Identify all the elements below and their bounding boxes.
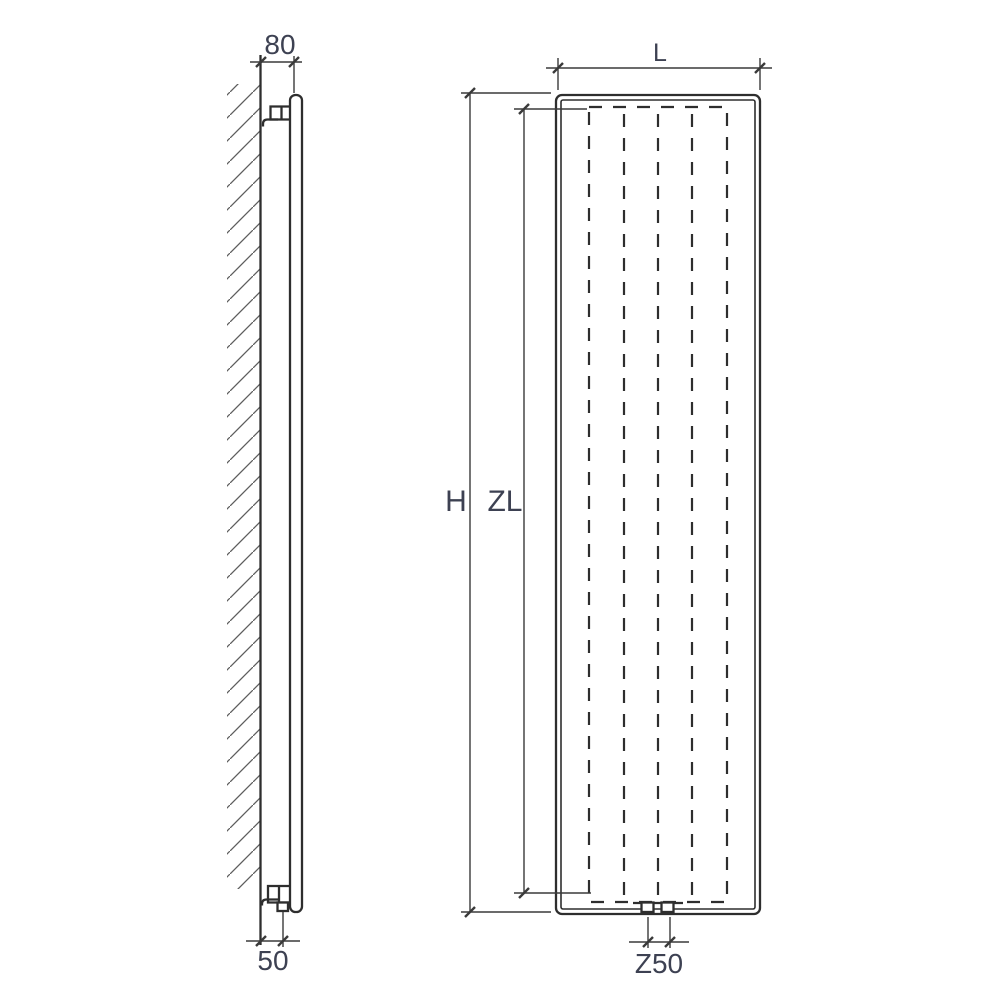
technical-drawing-canvas: 80 50 L H ZL Z50 (0, 0, 1000, 1000)
bracket-top-foot (263, 120, 278, 127)
dimension-convector-height (514, 104, 591, 898)
radiator-panel-profile (290, 95, 302, 912)
dimension-label-L: L (653, 39, 667, 67)
connection-nub (662, 903, 674, 913)
connection-nub (642, 903, 654, 913)
dimension-label-50: 50 (257, 945, 288, 976)
dimension-connection-spacing (629, 917, 689, 948)
mounting-bracket-top (263, 107, 291, 127)
wall-hatch (227, 84, 261, 889)
dimension-wall-offset-bottom (246, 912, 300, 947)
pipe-stub (278, 903, 289, 912)
side-view (227, 55, 302, 947)
radiator-dimension-diagram: 80 50 L H ZL Z50 (0, 0, 1000, 1000)
dimension-label-Z50: Z50 (635, 948, 683, 979)
dimension-label-80: 80 (264, 29, 295, 60)
dimension-label-H: H (445, 485, 467, 518)
mounting-bracket-bottom (262, 886, 290, 911)
dimension-label-ZL: ZL (487, 485, 522, 518)
